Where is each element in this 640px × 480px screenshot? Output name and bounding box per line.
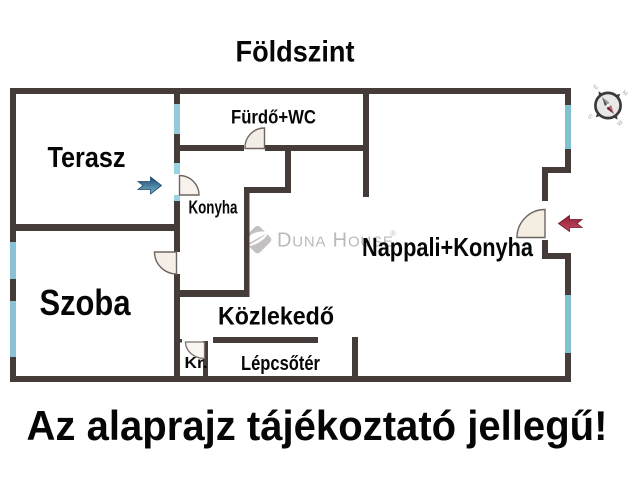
svg-text:Terasz: Terasz <box>48 142 126 174</box>
svg-text:Nappali+Konyha: Nappali+Konyha <box>362 232 533 262</box>
svg-text:Szoba: Szoba <box>40 282 132 323</box>
svg-text:Kr.: Kr. <box>185 355 208 372</box>
svg-text:Közlekedő: Közlekedő <box>218 303 334 331</box>
svg-text:Az alaprajz tájékoztató jelleg: Az alaprajz tájékoztató jellegű! <box>27 402 608 449</box>
svg-text:Lépcsőtér: Lépcsőtér <box>241 353 320 375</box>
svg-text:Földszint: Földszint <box>236 36 355 69</box>
svg-text:Konyha: Konyha <box>189 198 239 218</box>
svg-text:Fürdő+WC: Fürdő+WC <box>231 108 316 129</box>
